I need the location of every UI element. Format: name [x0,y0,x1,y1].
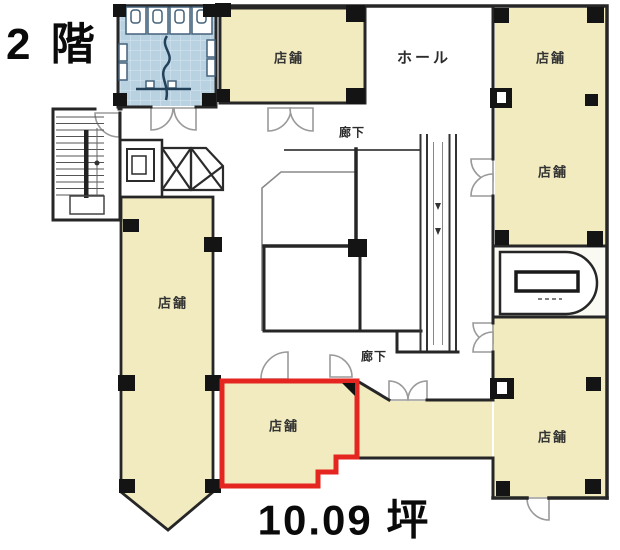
column [113,4,126,17]
urinal-left-2 [119,63,127,80]
column [119,479,135,493]
column [203,4,216,17]
elevator-cab-outline [127,149,154,181]
column [495,230,509,245]
core-room-a-outline [262,172,356,331]
column [585,94,598,106]
shop-right-column-floor [495,8,606,245]
column [217,89,230,102]
column [496,481,510,496]
restroom-door-right-arc [174,108,196,130]
shop-top-center-label: 店舗 [274,48,304,67]
column [215,3,231,17]
column [118,375,135,391]
urinal-right-2 [207,59,215,76]
restroom-door-left-arc [151,108,173,130]
elevator-cab-inner [132,156,146,174]
column [494,8,509,23]
stair-handrail [84,130,89,198]
column [587,231,603,247]
urinal-left-1 [119,44,127,61]
highlight-shop-door-right-arc [330,355,352,377]
lower-corridor-door-right-arc [408,381,427,400]
sink-2 [168,81,176,88]
stair-direction-dot [95,161,100,166]
floor-plan-page: 2 階 ホール 廊下 廊下 店舗 店舗 店舗 店舗 店舗 店舗 10.09 坪 [0,0,620,550]
column [346,5,365,22]
corridor-upper-label: 廊下 [339,124,365,141]
column [205,479,221,493]
toilet-3 [175,10,184,23]
escalator-arrow-1 [435,203,441,210]
column [587,7,604,23]
column [202,93,216,106]
column [348,239,367,257]
staircase [56,117,104,214]
shop-highlighted-label: 店舗 [269,416,299,435]
oval-stair-inner-rect [516,272,578,291]
toilet-2 [153,10,162,23]
stair-landing [70,196,104,214]
lower-corridor-door-left-arc [389,381,408,400]
shaft-x-box-2 [191,148,223,190]
elevator-core [127,148,223,190]
area-size-label: 10.09 坪 [258,487,431,548]
shaft-x-box-1 [162,148,191,190]
shop-right-upper-label: 店舗 [536,48,566,67]
highlight-shop-door-left-arc [261,352,288,379]
double-column-notch [497,382,507,394]
column [585,479,601,494]
floor-plan-drawing [0,0,620,550]
hall-shop-door-lower-arc [471,174,493,196]
escalator [418,134,458,352]
shop-left-label: 店舗 [158,293,188,312]
column [205,375,221,391]
shop-right-lower-label: 店舗 [538,162,568,181]
oval-stair [500,252,597,314]
core-room-b-walls [264,246,360,331]
escalator-arrow-2 [435,228,441,235]
core-light-outline [262,172,356,331]
hall-label: ホール [397,47,451,68]
upper-corridor-door-left-arc [268,108,291,131]
shop-bottom-right-label: 店舗 [538,427,568,446]
column [586,377,601,391]
column [346,88,365,104]
column [123,219,139,232]
escalator-rails [421,134,457,352]
corridor-lower-label: 廊下 [361,348,387,365]
toilet-1 [131,10,140,23]
urinal-right-1 [207,40,215,57]
bottom-right-shop-door-arc [527,498,549,520]
escalator-inner-lines [434,142,443,345]
column [113,93,127,106]
double-column-notch [497,92,506,103]
sink-1 [146,81,154,88]
upper-corridor-door-right-arc [290,108,313,131]
shop-bottom-right-floor [494,318,606,497]
floor-title: 2 階 [6,8,99,72]
column [204,237,222,252]
